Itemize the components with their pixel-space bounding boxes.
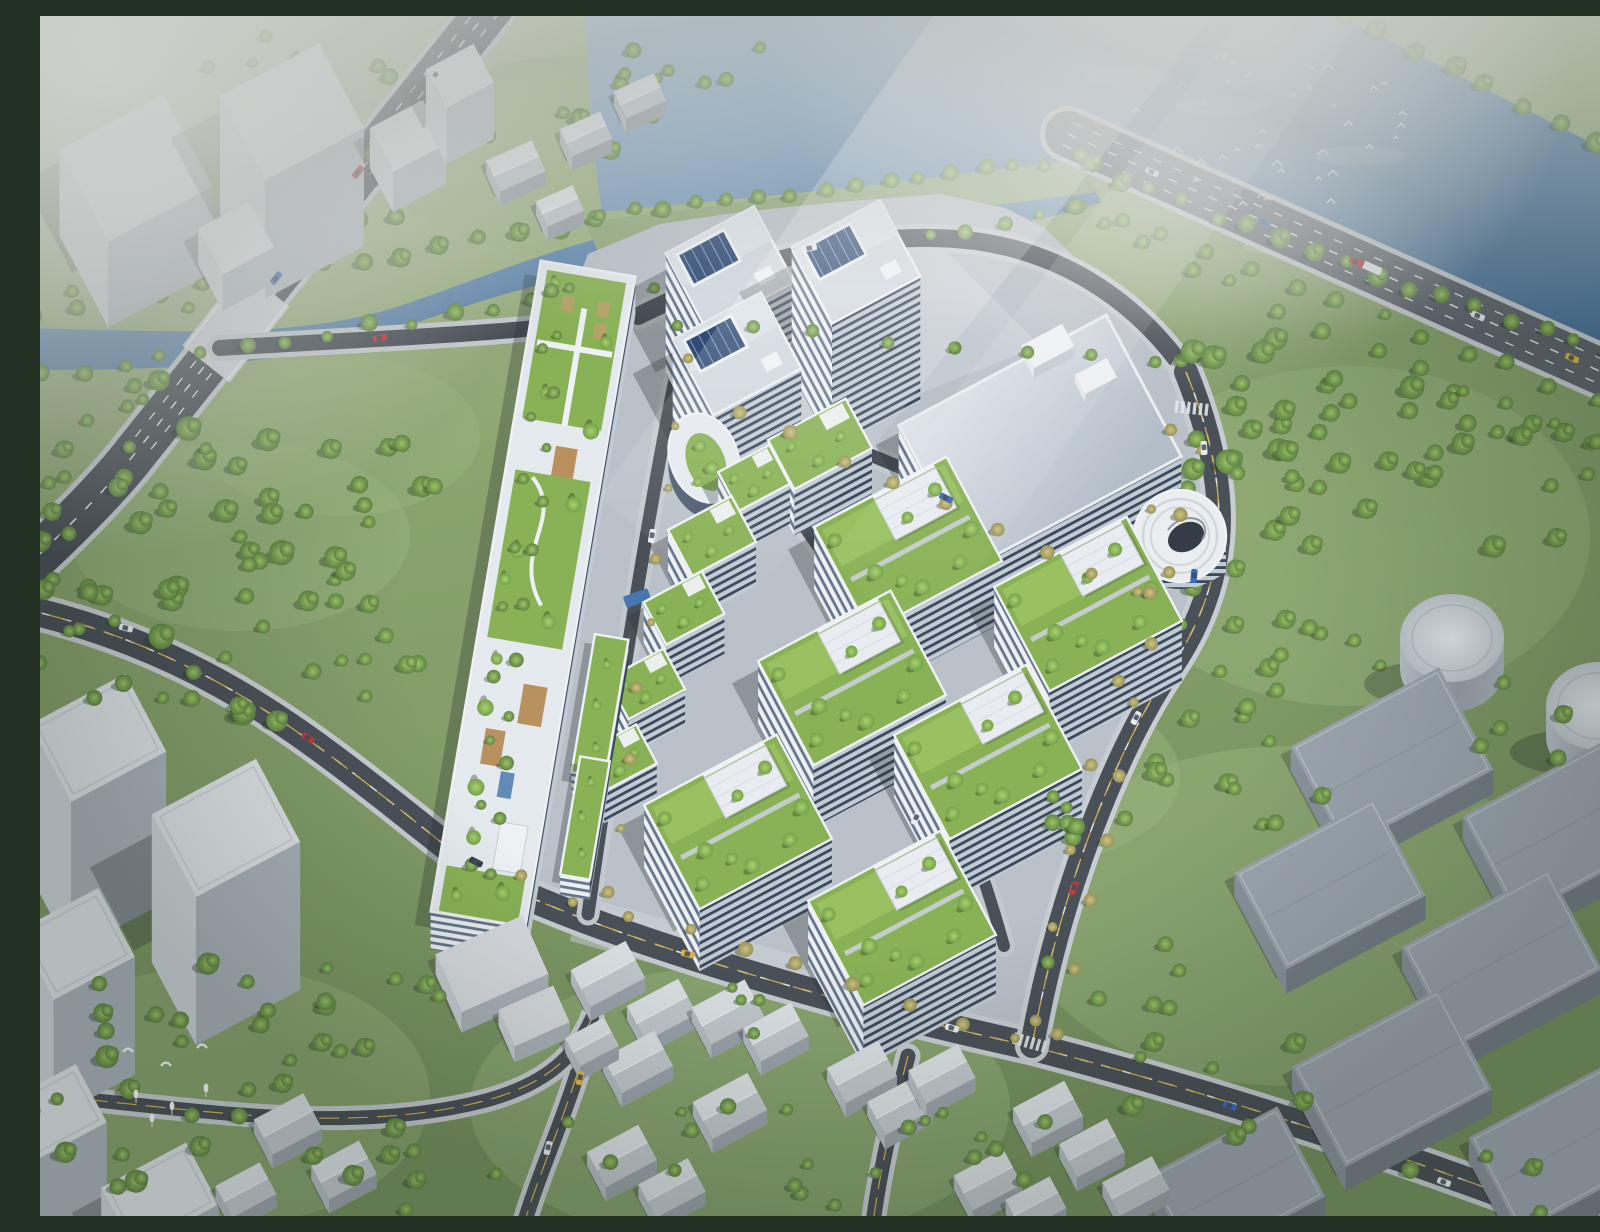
aerial-render: Aerial rendering of a riverside eco busi… [40,16,1600,1216]
render-canvas: Aerial rendering of a riverside eco busi… [40,16,1600,1216]
atmosphere [40,16,1600,1216]
